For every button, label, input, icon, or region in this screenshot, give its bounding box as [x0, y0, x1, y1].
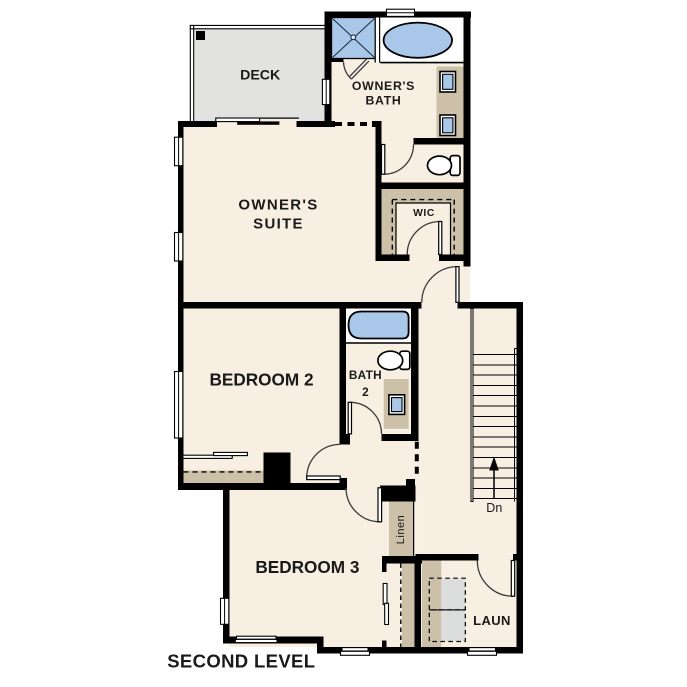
svg-text:2: 2 — [362, 385, 369, 399]
svg-text:Linen: Linen — [395, 515, 407, 544]
svg-text:OWNER'S: OWNER'S — [352, 79, 415, 93]
svg-text:Dn: Dn — [486, 501, 502, 515]
svg-text:BATH: BATH — [365, 94, 401, 108]
svg-text:BEDROOM 2: BEDROOM 2 — [209, 370, 313, 390]
svg-text:SUITE: SUITE — [253, 216, 304, 233]
svg-text:OWNER'S: OWNER'S — [238, 197, 318, 214]
svg-text:DECK: DECK — [240, 68, 281, 84]
svg-text:LAUN: LAUN — [473, 613, 511, 628]
svg-text:BATH: BATH — [349, 368, 382, 382]
svg-text:SECOND LEVEL: SECOND LEVEL — [167, 651, 315, 672]
svg-text:WIC: WIC — [413, 208, 435, 219]
svg-text:BEDROOM 3: BEDROOM 3 — [255, 557, 359, 577]
